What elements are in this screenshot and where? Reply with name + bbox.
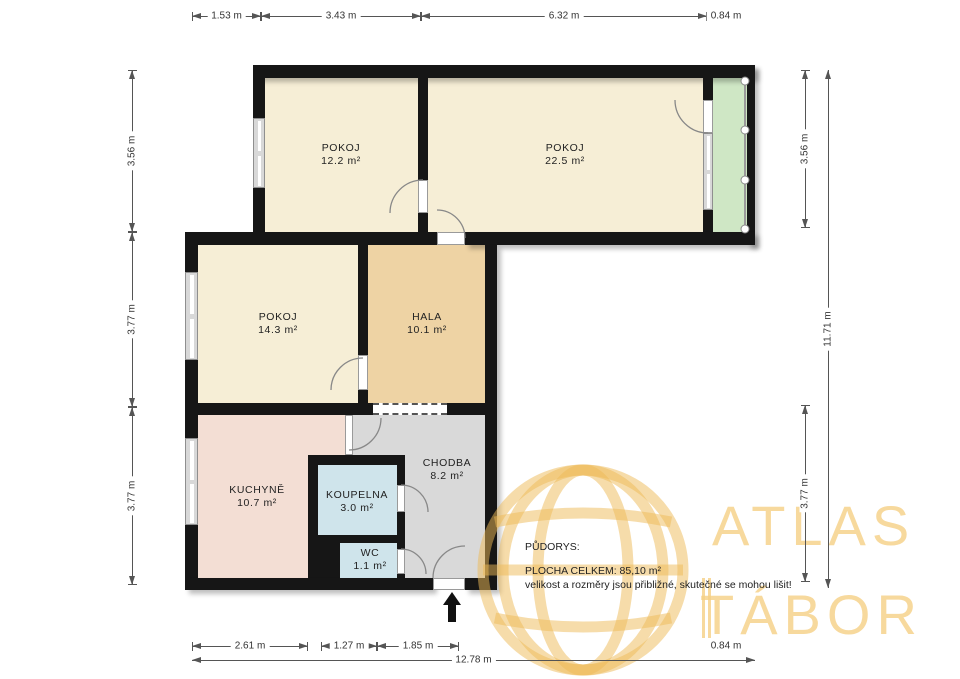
door-pokoj1-pokoj2	[418, 180, 428, 213]
wall-left-exterior	[185, 525, 198, 578]
wall-bottom-exterior	[185, 578, 433, 590]
door-hala-pokoj2	[437, 232, 465, 245]
door-koupelna	[397, 485, 405, 512]
room-label-koupelna: KOUPELNA3.0 m²	[326, 489, 388, 515]
opening-hala-chodba	[373, 403, 447, 415]
dim-left-2: 3.77 m	[128, 407, 138, 585]
wall-middle-band	[465, 232, 755, 245]
wall-pokoj3-hala	[358, 390, 368, 403]
wall-divider-pokoj	[418, 78, 428, 180]
dim-bottom-2: 1.85 m	[377, 642, 459, 652]
room-label-pokoj2: POKOJ22.5 m²	[545, 142, 585, 168]
wall-bottom-exterior	[465, 578, 497, 590]
entrance-arrow-shaft	[448, 604, 456, 622]
window-kuchyne-left	[185, 438, 198, 525]
dim-bottom-3: 0.84 m	[707, 642, 745, 652]
dim-right-1: 3.77 m	[801, 405, 811, 582]
dim-top-3: 0.84 m	[707, 12, 745, 22]
watermark-line2: TÁBOR	[700, 583, 923, 646]
room-label-pokoj1: POKOJ12.2 m²	[321, 142, 361, 168]
floorplan-canvas: POKOJ12.2 m² POKOJ22.5 m² POKOJ14.3 m² H…	[0, 0, 960, 679]
door-hala-pokoj3	[358, 355, 368, 390]
dim-bottom-total: 12.78 m	[192, 656, 755, 666]
window-pokoj3-left	[185, 272, 198, 360]
legend-title: PŮDORYS:	[525, 541, 580, 553]
wall-left-exterior	[185, 245, 198, 272]
balcony-railing	[744, 78, 746, 232]
dim-bottom-0: 2.61 m	[192, 642, 308, 652]
dim-right-0: 3.56 m	[801, 70, 811, 228]
room-label-chodba: CHODBA8.2 m²	[423, 457, 472, 483]
dim-bottom-1: 1.27 m	[321, 642, 377, 652]
wall-lower-band	[185, 403, 373, 415]
dim-right-2: 11.71 m	[824, 70, 834, 588]
room-label-pokoj3: POKOJ14.3 m²	[258, 311, 298, 337]
dim-left-1: 3.77 m	[128, 232, 138, 407]
door-kuchyne-chodba	[345, 415, 353, 455]
wall-pokoj3-hala	[358, 245, 368, 355]
dim-left-0: 3.56 m	[128, 70, 138, 232]
room-label-kuchyne: KUCHYNĚ10.7 m²	[229, 484, 285, 510]
wall-balcony	[703, 78, 713, 100]
room-label-hala: HALA10.1 m²	[407, 311, 447, 337]
wall-lower-band	[447, 403, 493, 415]
wall-right-exterior-top	[747, 65, 755, 245]
legend-total-area: PLOCHA CELKEM: 85,10 m²	[525, 565, 661, 577]
wall-balcony	[703, 210, 713, 232]
room-label-wc: WC1.1 m²	[353, 547, 386, 573]
dim-top-0: 1.53 m	[192, 12, 261, 22]
door-entrance	[433, 578, 465, 590]
door-balcony	[703, 100, 713, 133]
wall	[418, 213, 428, 232]
balcony-floor	[713, 78, 747, 232]
window-balcony	[703, 133, 713, 210]
wall-left-exterior	[185, 360, 198, 438]
dim-top-1: 3.43 m	[261, 12, 421, 22]
window-pokoj1-left	[253, 118, 265, 188]
watermark-line1: ATLAS	[712, 494, 915, 557]
wall	[253, 78, 265, 118]
door-wc	[397, 549, 405, 574]
wall-middle-band	[185, 232, 437, 245]
wall-top-exterior	[253, 65, 755, 78]
dim-top-2: 6.32 m	[421, 12, 707, 22]
legend-disclaimer: velikost a rozměry jsou přibližné, skute…	[525, 579, 792, 591]
